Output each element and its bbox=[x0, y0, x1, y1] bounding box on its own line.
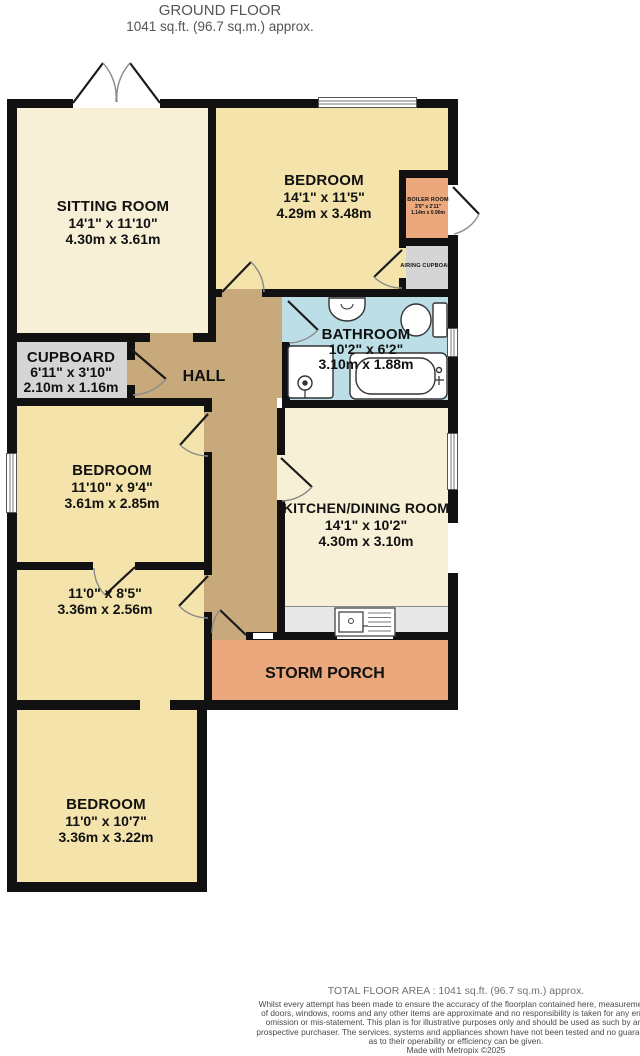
total-floor-area: TOTAL FLOOR AREA : 1041 sq.ft. (96.7 sq.… bbox=[256, 985, 640, 998]
wall bbox=[135, 562, 212, 570]
room-dim-metric: 4.30m x 3.10m bbox=[283, 533, 449, 549]
wall bbox=[7, 700, 140, 710]
label-cupboard: CUPBOARD 6'11" x 3'10" 2.10m x 1.16m bbox=[24, 350, 119, 394]
wall bbox=[197, 710, 207, 882]
made-with-credit: Made with Metropix ©2025 bbox=[256, 1046, 640, 1055]
wall bbox=[10, 333, 150, 342]
room-name: BATHROOM bbox=[319, 327, 414, 342]
wall bbox=[448, 573, 458, 707]
wall bbox=[10, 99, 73, 108]
wall bbox=[208, 99, 216, 342]
door-arc bbox=[454, 214, 479, 234]
wall bbox=[204, 452, 212, 575]
threshold bbox=[253, 633, 273, 639]
label-storm-porch: STORM PORCH bbox=[265, 665, 385, 683]
room-dim-metric: 3.36m x 2.56m bbox=[58, 601, 153, 617]
wall bbox=[170, 700, 458, 710]
wall bbox=[208, 289, 222, 297]
french-door-icon bbox=[130, 63, 160, 103]
label-bedroom-2: BEDROOM 11'10" x 9'4" 3.61m x 2.85m bbox=[65, 462, 160, 511]
wall bbox=[10, 562, 93, 570]
room-name: BEDROOM bbox=[65, 462, 160, 479]
room-dim-imperial: 14'1" x 11'10" bbox=[57, 215, 169, 231]
room-dim-metric: 2.10m x 1.16m bbox=[24, 380, 119, 395]
wall bbox=[193, 333, 216, 342]
room-dim-imperial: 11'10" x 9'4" bbox=[65, 479, 160, 495]
door-arc bbox=[103, 63, 116, 102]
room-dim-metric: 1.14m x 0.90m bbox=[407, 210, 449, 216]
label-boiler-room: BOILER ROOM 3'9" x 2'11" 1.14m x 0.90m bbox=[407, 197, 449, 216]
room-store bbox=[17, 562, 204, 700]
wall bbox=[399, 170, 458, 178]
wall bbox=[160, 99, 318, 108]
window-icon bbox=[318, 97, 417, 108]
wall bbox=[448, 357, 458, 433]
footer: TOTAL FLOOR AREA : 1041 sq.ft. (96.7 sq.… bbox=[256, 985, 640, 1055]
window-icon bbox=[6, 453, 17, 513]
wall bbox=[204, 612, 212, 710]
wall bbox=[399, 238, 458, 246]
room-name: SITTING ROOM bbox=[57, 198, 169, 215]
room-name: BEDROOM bbox=[277, 172, 372, 189]
room-dim-metric: 3.36m x 3.22m bbox=[59, 829, 154, 845]
french-door-icon bbox=[73, 63, 103, 103]
label-store-room: 11'0" x 8'5" 3.36m x 2.56m bbox=[58, 585, 153, 617]
room-name: BEDROOM bbox=[59, 796, 154, 813]
wall bbox=[282, 342, 290, 408]
room-dim-metric: 4.29m x 3.48m bbox=[277, 205, 372, 221]
room-hall-upper bbox=[216, 289, 282, 398]
wall bbox=[204, 406, 212, 412]
wall bbox=[127, 342, 135, 360]
wall bbox=[282, 289, 458, 297]
wall bbox=[282, 400, 458, 408]
room-dim-metric: 3.10m x 1.88m bbox=[319, 357, 414, 372]
label-sitting-room: SITTING ROOM 14'1" x 11'10" 4.30m x 3.61… bbox=[57, 198, 169, 247]
wall bbox=[448, 490, 458, 523]
wall bbox=[277, 408, 285, 455]
room-dim-imperial: 14'1" x 11'5" bbox=[277, 189, 372, 205]
room-name: HALL bbox=[183, 368, 226, 386]
threshold bbox=[337, 633, 393, 639]
label-kitchen-dining: KITCHEN/DINING ROOM 14'1" x 10'2" 4.30m … bbox=[283, 500, 449, 549]
room-hall-wide bbox=[127, 333, 216, 398]
room-name: CUPBOARD bbox=[24, 350, 119, 365]
window-icon bbox=[447, 433, 458, 490]
room-dim-imperial: 11'0" x 8'5" bbox=[58, 585, 153, 601]
label-airing-cupboard: AIRING CUPBOARD bbox=[400, 263, 456, 270]
room-name: STORM PORCH bbox=[265, 665, 385, 683]
room-name: BOILER ROOM bbox=[407, 197, 449, 204]
wall bbox=[399, 278, 406, 297]
wall bbox=[127, 385, 135, 406]
room-dim-metric: 4.30m x 3.61m bbox=[57, 231, 169, 247]
room-dim-metric: 3.61m x 2.85m bbox=[65, 495, 160, 511]
label-bedroom-3: BEDROOM 11'0" x 10'7" 3.36m x 3.22m bbox=[59, 796, 154, 845]
label-bathroom: BATHROOM 10'2" x 6'2" 3.10m x 1.88m bbox=[319, 327, 414, 371]
room-dim-imperial: 14'1" x 10'2" bbox=[283, 517, 449, 533]
room-bedroom-3 bbox=[17, 700, 197, 882]
room-hall-corridor bbox=[204, 398, 277, 640]
wall bbox=[10, 398, 212, 406]
plan-title-line2: 1041 sq.ft. (96.7 sq.m.) approx. bbox=[126, 19, 314, 35]
wall bbox=[7, 882, 207, 892]
plan-title-line1: GROUND FLOOR bbox=[126, 2, 314, 19]
room-dim-imperial: 11'0" x 10'7" bbox=[59, 813, 154, 829]
room-name: AIRING CUPBOARD bbox=[400, 263, 456, 270]
kitchen-counter bbox=[285, 606, 448, 632]
door-icon bbox=[453, 187, 479, 214]
room-dim-imperial: 10'2" x 6'2" bbox=[319, 342, 414, 357]
window-icon bbox=[447, 328, 458, 357]
floorplan-page: GROUND FLOOR 1041 sq.ft. (96.7 sq.m.) ap… bbox=[0, 0, 640, 1056]
label-bedroom-1: BEDROOM 14'1" x 11'5" 4.29m x 3.48m bbox=[277, 172, 372, 221]
wall bbox=[448, 235, 458, 328]
room-name: KITCHEN/DINING ROOM bbox=[283, 500, 449, 517]
room-dim-imperial: 6'11" x 3'10" bbox=[24, 365, 119, 380]
door-arc bbox=[117, 63, 130, 102]
label-hall: HALL bbox=[183, 368, 226, 386]
plan-title: GROUND FLOOR 1041 sq.ft. (96.7 sq.m.) ap… bbox=[126, 2, 314, 35]
